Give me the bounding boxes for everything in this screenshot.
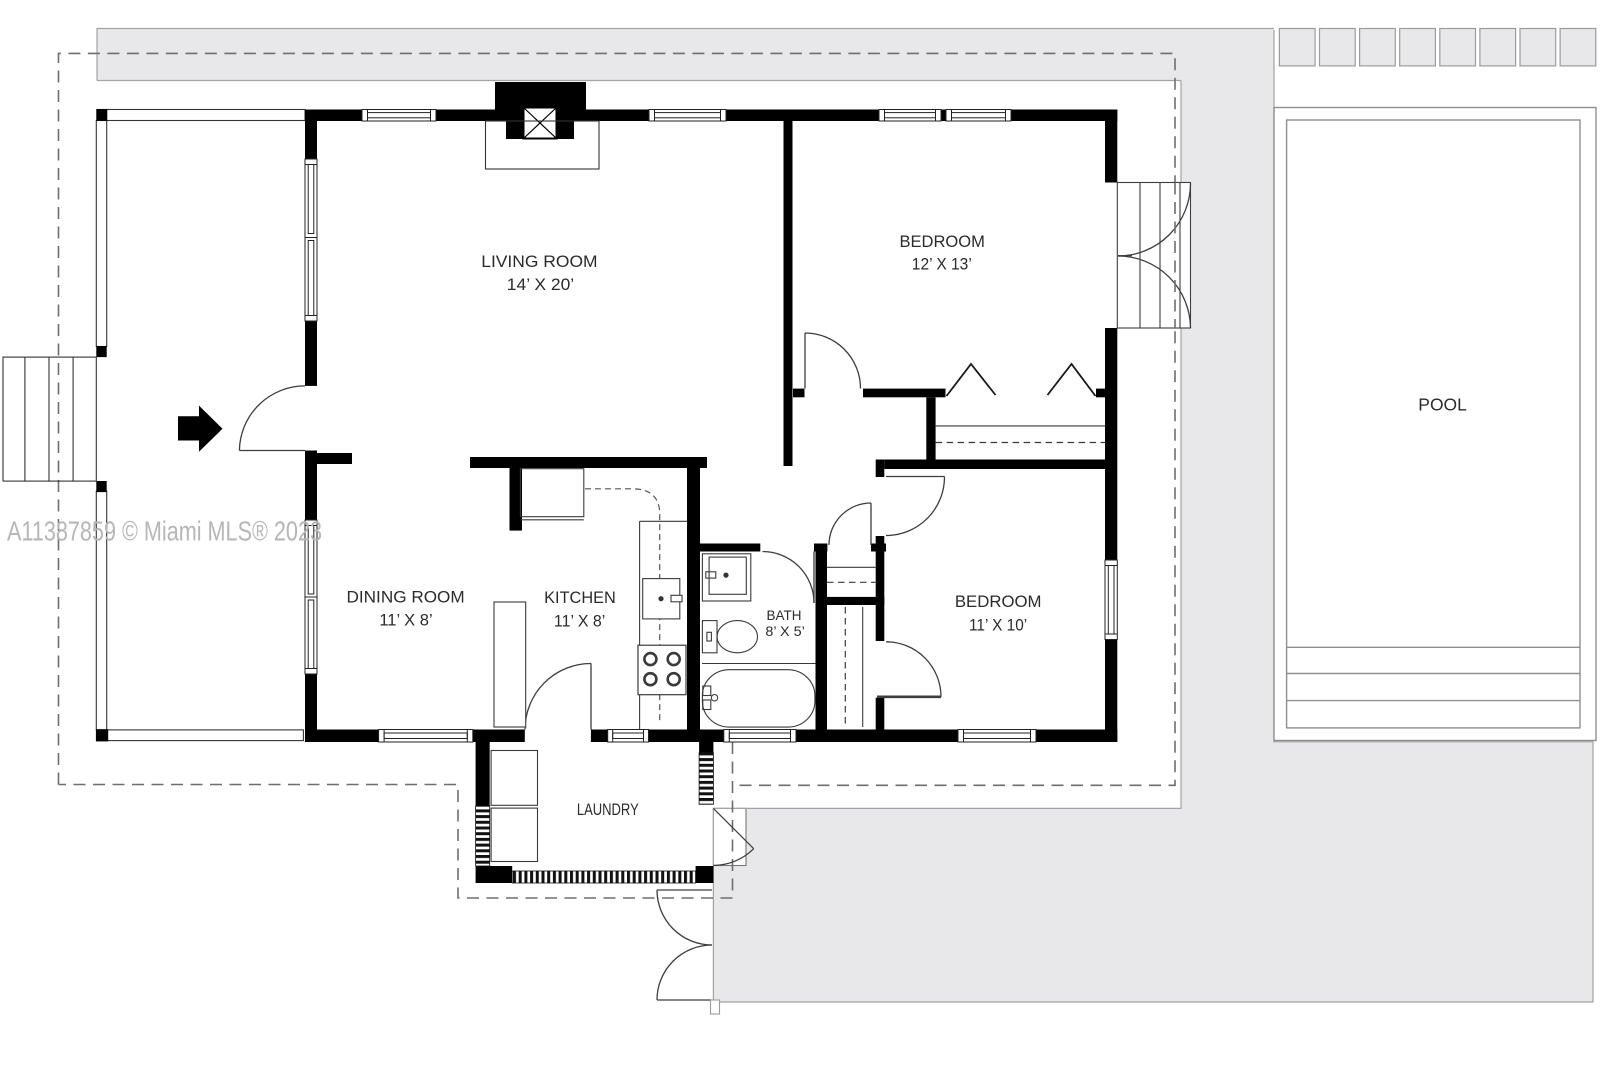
svg-text:DINING ROOM: DINING ROOM [347, 587, 465, 606]
svg-text:14’ X 20’: 14’ X 20’ [507, 275, 574, 294]
svg-text:11’ X 8’: 11’ X 8’ [379, 611, 432, 630]
svg-text:11’ X 10’: 11’ X 10’ [969, 616, 1027, 635]
svg-text:LAUNDRY: LAUNDRY [577, 800, 639, 819]
svg-text:KITCHEN: KITCHEN [544, 588, 616, 607]
svg-text:LIVING ROOM: LIVING ROOM [481, 252, 597, 271]
svg-text:BEDROOM: BEDROOM [955, 592, 1042, 611]
svg-text:11’ X 8’: 11’ X 8’ [554, 612, 605, 631]
svg-text:BATH: BATH [767, 607, 802, 623]
svg-text:BEDROOM: BEDROOM [900, 232, 985, 251]
svg-text:A11387859 © Miami MLS® 2023: A11387859 © Miami MLS® 2023 [7, 516, 322, 547]
svg-text:POOL: POOL [1418, 395, 1467, 415]
svg-text:12’ X 13’: 12’ X 13’ [912, 255, 972, 274]
svg-text:8’ X 5’: 8’ X 5’ [765, 623, 804, 639]
